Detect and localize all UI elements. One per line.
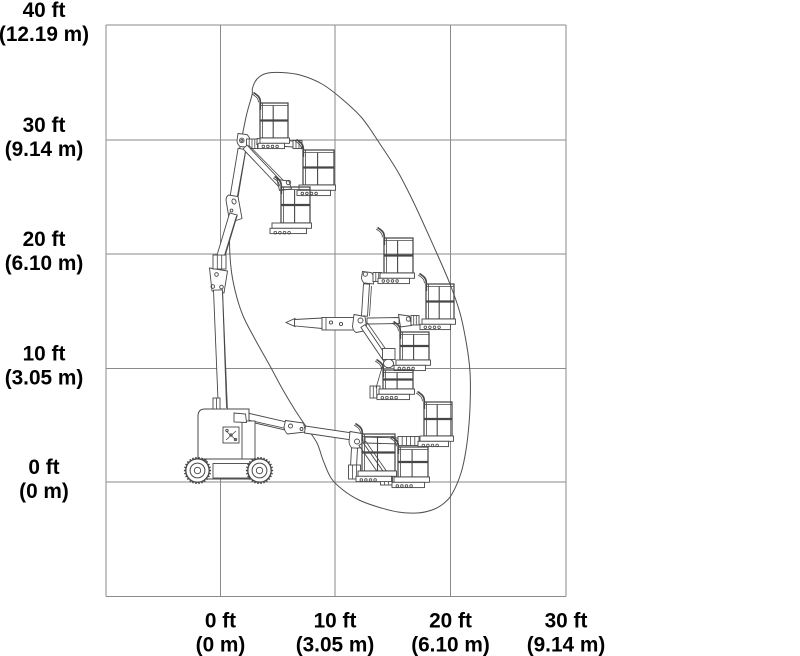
svg-text:(9.14 m): (9.14 m) bbox=[5, 138, 84, 161]
svg-text:20 ft: 20 ft bbox=[23, 228, 66, 251]
svg-text:30 ft: 30 ft bbox=[545, 610, 588, 633]
svg-text:(6.10 m): (6.10 m) bbox=[411, 634, 490, 656]
svg-text:30 ft: 30 ft bbox=[23, 114, 66, 137]
svg-text:(3.05 m): (3.05 m) bbox=[5, 367, 84, 390]
svg-text:(9.14 m): (9.14 m) bbox=[527, 634, 606, 656]
svg-text:(0 m): (0 m) bbox=[19, 480, 69, 503]
svg-text:(6.10 m): (6.10 m) bbox=[5, 252, 84, 275]
svg-text:10 ft: 10 ft bbox=[314, 610, 357, 633]
svg-text:(12.19 m): (12.19 m) bbox=[0, 23, 89, 46]
svg-text:(3.05 m): (3.05 m) bbox=[296, 634, 375, 656]
svg-text:10 ft: 10 ft bbox=[23, 343, 66, 366]
svg-text:(0 m): (0 m) bbox=[196, 634, 246, 656]
svg-text:40 ft: 40 ft bbox=[23, 0, 66, 22]
svg-text:0 ft: 0 ft bbox=[28, 456, 59, 479]
svg-text:20 ft: 20 ft bbox=[429, 610, 472, 633]
svg-text:0 ft: 0 ft bbox=[205, 610, 236, 633]
